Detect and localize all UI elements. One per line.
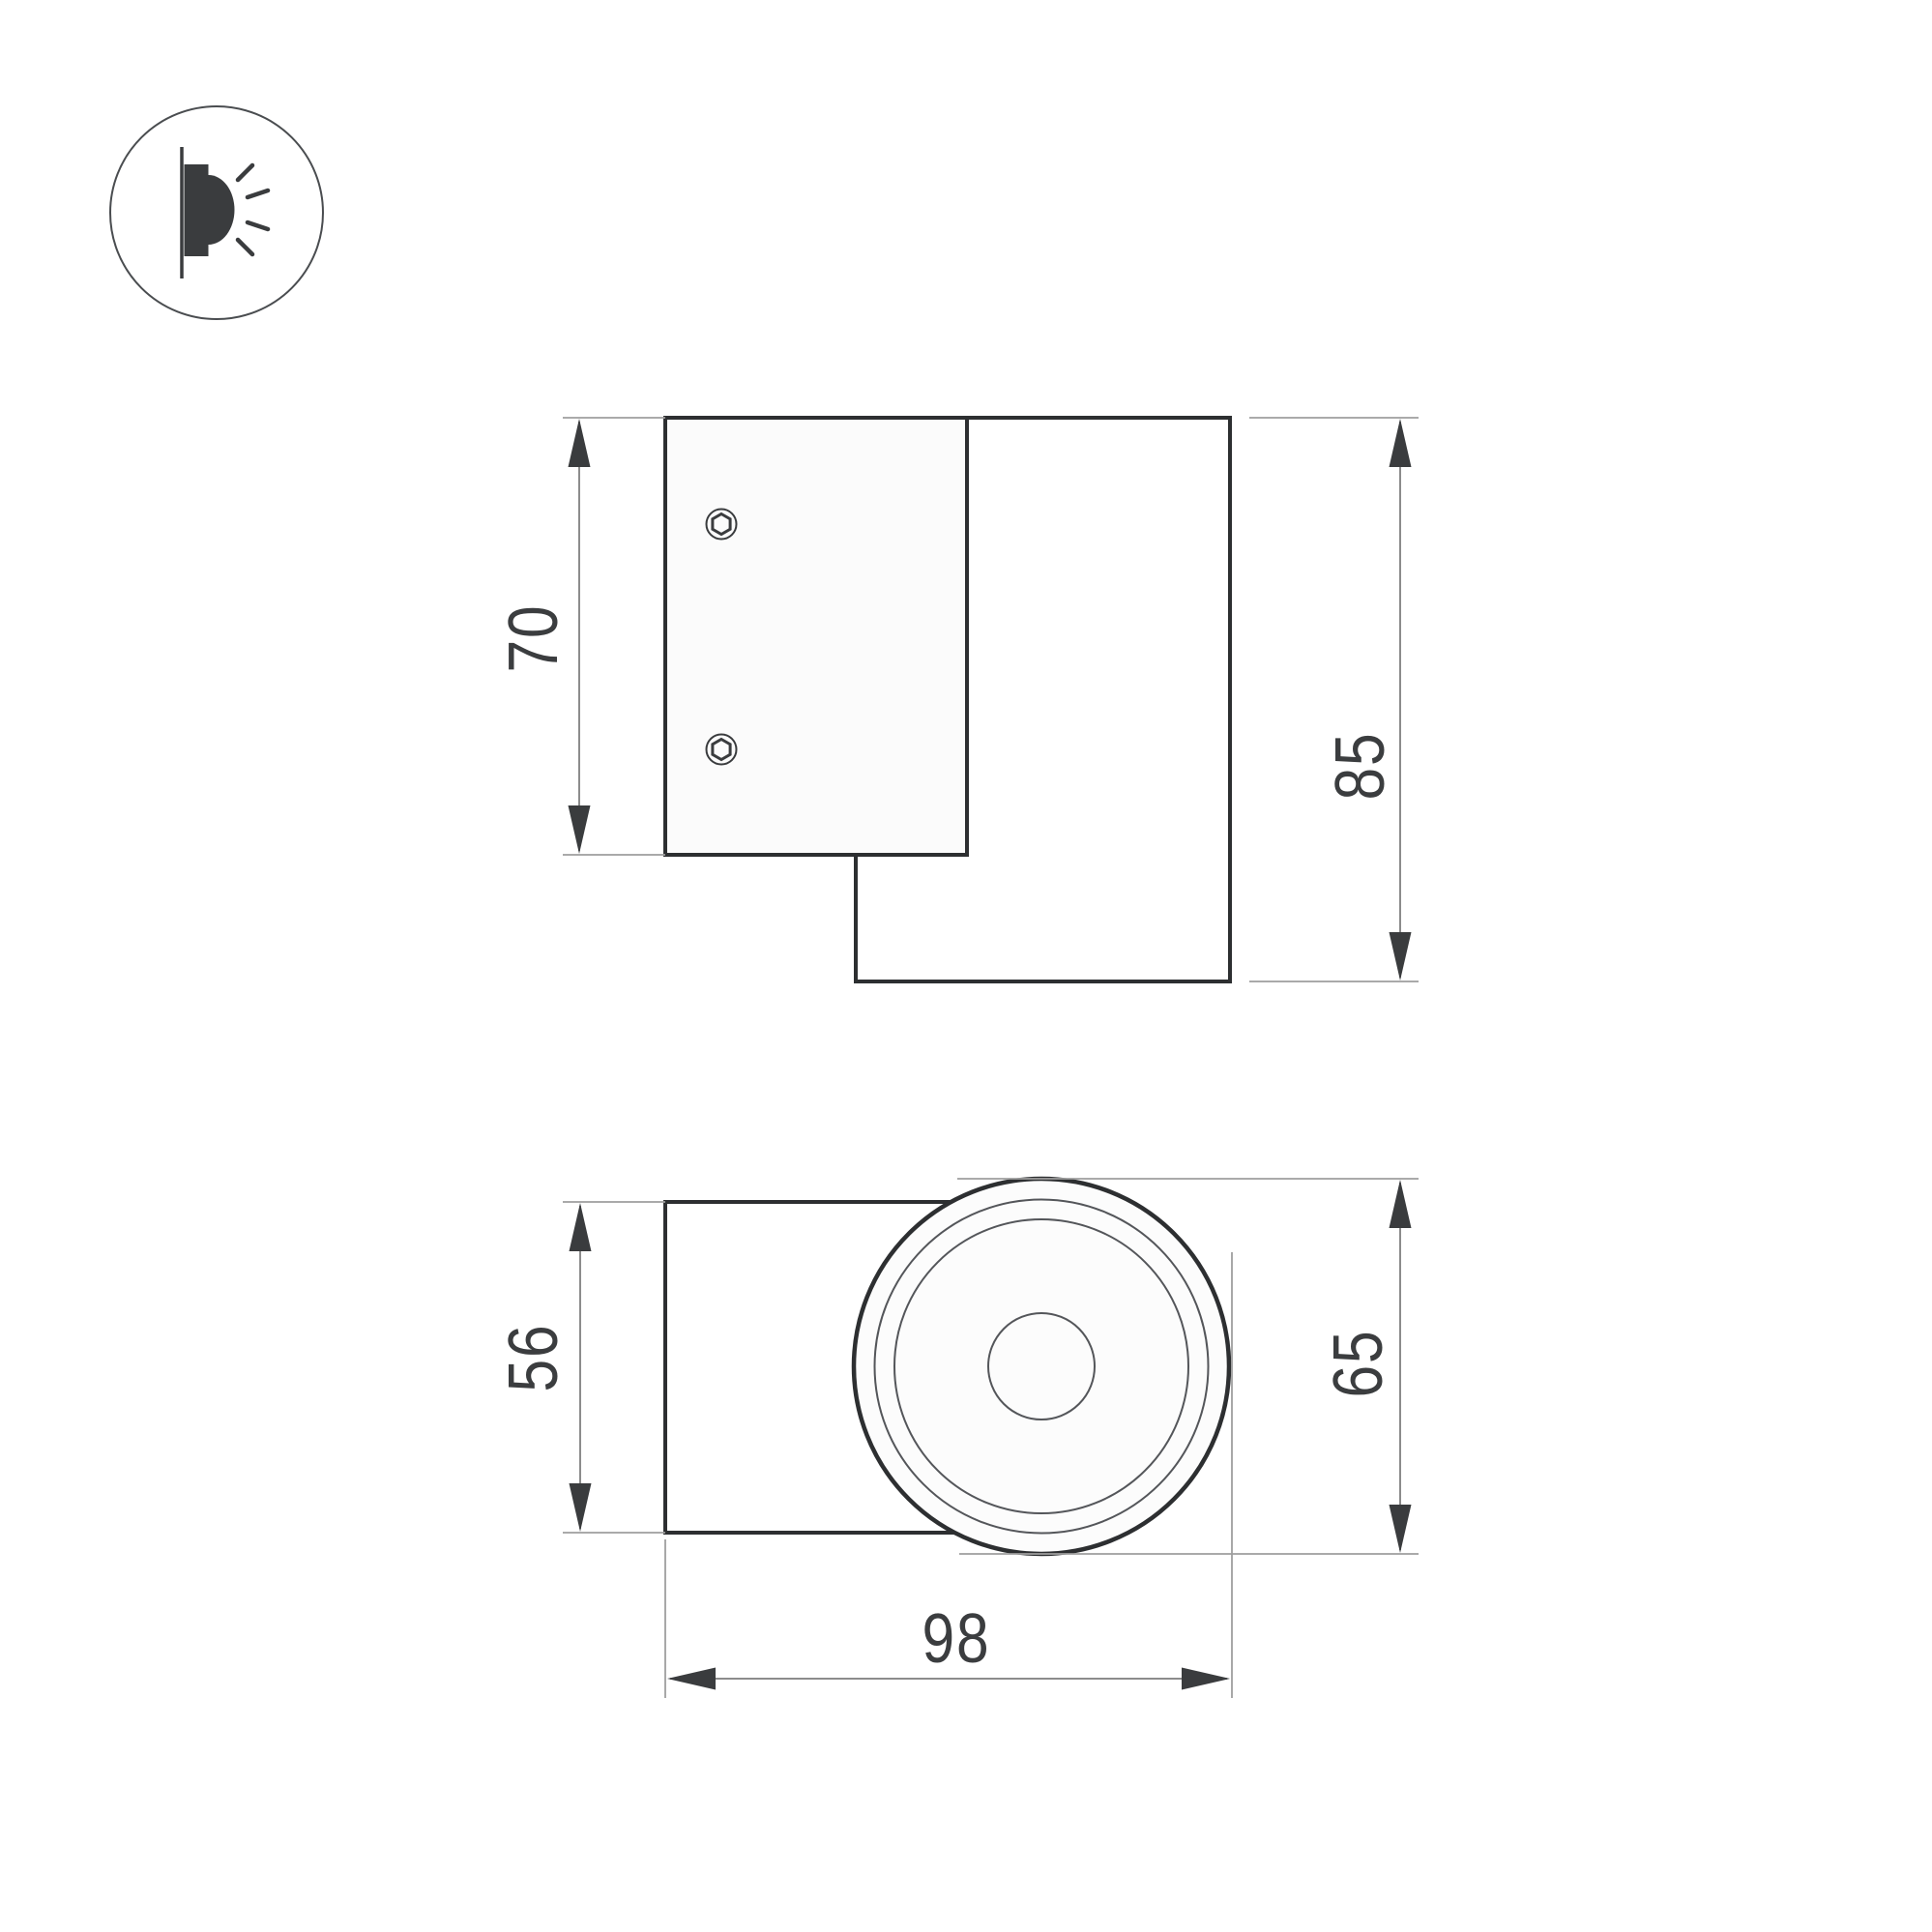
arrow-down-icon <box>570 1483 592 1532</box>
technical-drawing-page: 70 85 56 65 98 <box>0 0 1932 1932</box>
arrow-up-icon <box>570 1203 592 1251</box>
luminaire-dimension-drawing: 70 85 56 65 98 <box>0 0 1932 1932</box>
front-view <box>665 1179 1229 1554</box>
dimension-label-body-height: 85 <box>1322 732 1399 801</box>
dimension-label-face-diameter: 65 <box>1320 1330 1397 1398</box>
arrow-down-icon <box>569 805 591 854</box>
arrow-right-icon <box>1182 1668 1230 1690</box>
dimension-label-overall-depth: 98 <box>922 1600 991 1678</box>
side-view-mounting-plate <box>665 418 967 855</box>
arrow-up-icon <box>1390 419 1412 467</box>
arrow-up-icon <box>1390 1180 1412 1228</box>
arrow-left-icon <box>667 1668 716 1690</box>
side-view <box>665 418 1230 981</box>
arrow-up-icon <box>569 419 591 467</box>
front-face-outer-circle <box>854 1179 1229 1554</box>
dimension-label-plate-height: 70 <box>495 604 572 673</box>
wall-light-icon <box>110 106 323 319</box>
arrow-down-icon <box>1390 1505 1412 1553</box>
icon-lamp-body <box>185 164 209 256</box>
dimension-label-body-width: 56 <box>495 1324 572 1392</box>
arrow-down-icon <box>1390 932 1412 981</box>
